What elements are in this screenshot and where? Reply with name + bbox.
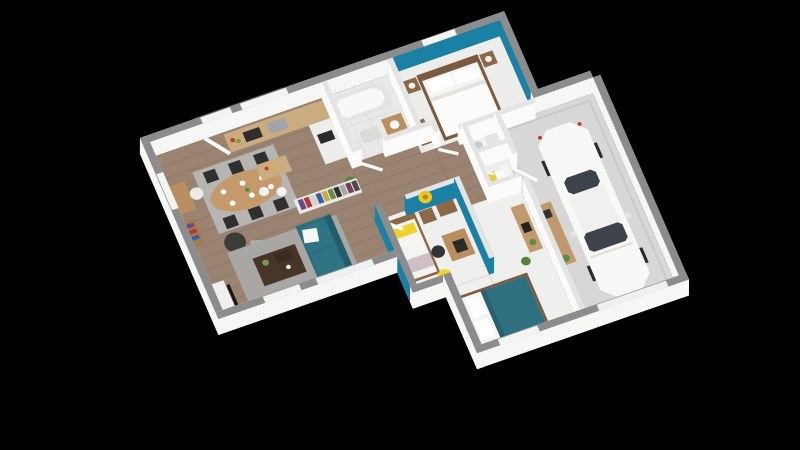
- place-setting: [249, 192, 255, 197]
- place-setting: [221, 189, 227, 194]
- car-taillight: [538, 136, 542, 140]
- table-centerpiece: [245, 188, 250, 192]
- sofa-pillow-white: [302, 228, 319, 244]
- plant: [521, 257, 531, 266]
- island-item: [273, 166, 276, 169]
- car-taillight: [578, 122, 582, 126]
- coffee-table-plant: [262, 260, 269, 266]
- plant: [530, 239, 537, 245]
- bedside-lamp: [485, 56, 492, 62]
- bathroom-sink: [390, 120, 400, 129]
- coffee-table-cup: [286, 265, 291, 269]
- floorplan-canvas: [0, 0, 800, 450]
- wall-art-circle-center: [423, 195, 428, 200]
- place-setting: [230, 201, 236, 206]
- bar-stool: [259, 187, 269, 196]
- bar-stool: [276, 187, 286, 196]
- desk-chair-white: [190, 187, 204, 199]
- island-item: [265, 167, 269, 171]
- fruit-bowl: [230, 138, 235, 142]
- fruit-bowl: [236, 139, 241, 143]
- floorplan-3d-render: [0, 0, 800, 450]
- place-setting: [268, 184, 274, 189]
- bedside-lamp: [409, 83, 416, 89]
- desk-chair-dark: [431, 245, 445, 257]
- place-setting: [240, 181, 246, 186]
